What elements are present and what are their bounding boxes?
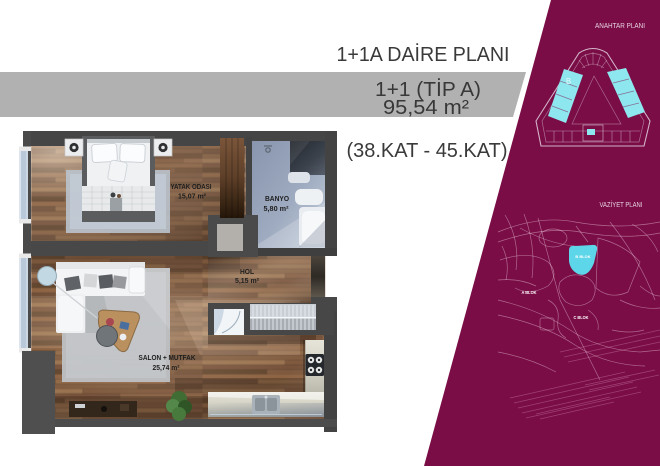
svg-text:(38.KAT - 45.KAT): (38.KAT - 45.KAT) xyxy=(347,140,508,162)
svg-text:HOL: HOL xyxy=(240,269,255,276)
svg-text:YATAK ODASI: YATAK ODASI xyxy=(171,184,212,191)
svg-text:95,54 m²: 95,54 m² xyxy=(383,97,469,119)
svg-text:A BLOK: A BLOK xyxy=(522,290,538,295)
svg-text:ANAHTAR PLANI: ANAHTAR PLANI xyxy=(595,21,645,30)
svg-text:B: B xyxy=(566,77,571,86)
svg-text:25,74 m²: 25,74 m² xyxy=(153,365,181,372)
svg-text:15,07 m²: 15,07 m² xyxy=(178,194,207,201)
svg-text:B BLOK: B BLOK xyxy=(575,254,590,259)
svg-text:BANYO: BANYO xyxy=(265,196,290,203)
svg-text:1+1A DAİRE PLANI: 1+1A DAİRE PLANI xyxy=(337,43,510,66)
svg-text:VAZİYET PLANI: VAZİYET PLANI xyxy=(600,200,643,209)
svg-text:SALON + MUTFAK: SALON + MUTFAK xyxy=(139,355,196,362)
svg-text:C BLOK: C BLOK xyxy=(574,315,590,320)
svg-text:5,15 m²: 5,15 m² xyxy=(235,278,260,285)
svg-text:5,80 m²: 5,80 m² xyxy=(264,206,290,213)
